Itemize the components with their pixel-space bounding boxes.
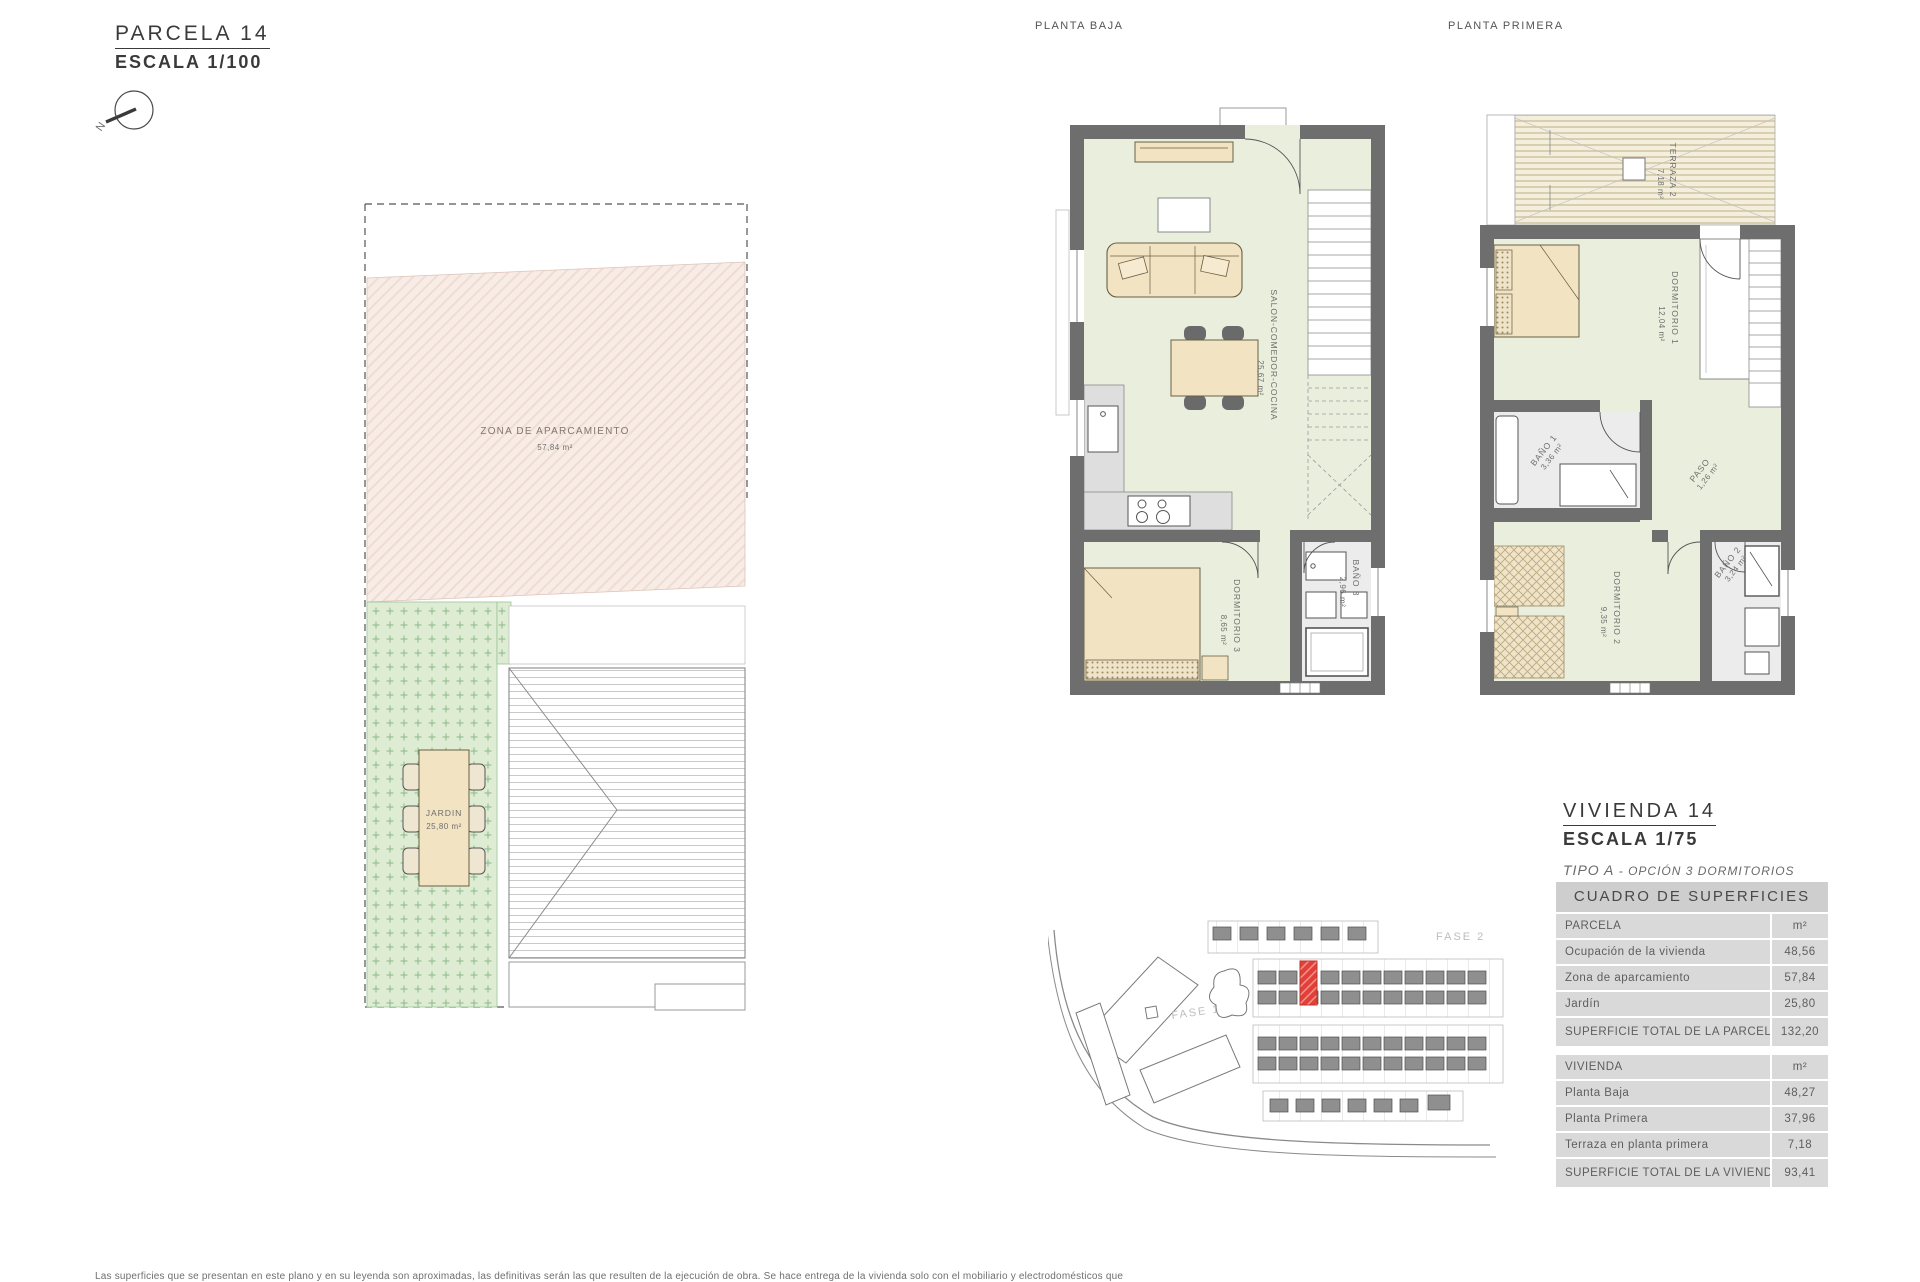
row-value: 25,80 bbox=[1772, 992, 1828, 1016]
row-label: Jardín bbox=[1556, 992, 1770, 1016]
toilet bbox=[1306, 592, 1336, 618]
lot-strips bbox=[1208, 921, 1503, 1121]
row-label: VIVIENDA bbox=[1556, 1055, 1770, 1079]
vivienda-title-block: VIVIENDA 14 ESCALA 1/75 TIPO A - OPCIÓN … bbox=[1563, 800, 1795, 878]
vivienda-opcion: - OPCIÓN 3 DORMITORIOS bbox=[1619, 864, 1795, 878]
dorm1-area: 12,04 m² bbox=[1657, 306, 1666, 342]
toilet2 bbox=[1745, 608, 1779, 646]
first-floor-plan: TERRAZA 2 7,18 m² bbox=[1460, 100, 1810, 710]
parking-zone: ZONA DE APARCAMIENTO 57,84 m² bbox=[367, 262, 745, 602]
salon-area: 25,67 m² bbox=[1256, 360, 1265, 396]
row-label: Planta Primera bbox=[1556, 1107, 1770, 1131]
sink bbox=[1088, 406, 1118, 452]
row-value: 48,27 bbox=[1772, 1081, 1828, 1105]
bano3-label: BAÑO 3 bbox=[1351, 560, 1361, 597]
footer-disclaimer: Las superficies que se presentan en este… bbox=[95, 1271, 1123, 1282]
highlighted-unit-14 bbox=[1300, 961, 1317, 1005]
row-label: Planta Baja bbox=[1556, 1081, 1770, 1105]
row-value: 7,18 bbox=[1772, 1133, 1828, 1157]
bathroom1 bbox=[1494, 412, 1640, 508]
table-row: Zona de aparcamiento 57,84 bbox=[1556, 966, 1828, 990]
north-label: N bbox=[94, 120, 108, 133]
table-row: Jardín 25,80 bbox=[1556, 992, 1828, 1016]
vivienda-tipo-line: TIPO A - OPCIÓN 3 DORMITORIOS bbox=[1563, 862, 1795, 878]
site-plan: FASE 1 FASE 2 bbox=[1048, 915, 1508, 1160]
ground-floor-plan: SALON-COMEDOR-COCINA 25,67 m² DORMITORIO… bbox=[1050, 100, 1400, 710]
row-value: 48,56 bbox=[1772, 940, 1828, 964]
sink-unit bbox=[1560, 464, 1636, 506]
row-label: Zona de aparcamiento bbox=[1556, 966, 1770, 990]
cooktop bbox=[1128, 496, 1190, 526]
sofa bbox=[1107, 243, 1242, 297]
parcela-title-block: PARCELA 14 ESCALA 1/100 bbox=[115, 22, 270, 73]
garden-label: JARDIN bbox=[426, 808, 462, 818]
table-row: VIVIENDA m² bbox=[1556, 1055, 1828, 1079]
roof-plan bbox=[509, 606, 745, 1010]
row-label: SUPERFICIE TOTAL DE LA VIVIENDA bbox=[1556, 1159, 1770, 1187]
vivienda-title: VIVIENDA 14 bbox=[1563, 800, 1716, 826]
row-value: m² bbox=[1772, 1055, 1828, 1079]
table-row-total: SUPERFICIE TOTAL DE LA PARCELA 132,20 bbox=[1556, 1018, 1828, 1046]
table-row: Terraza en planta primera 7,18 bbox=[1556, 1133, 1828, 1157]
shower bbox=[1306, 628, 1368, 676]
row-label: PARCELA bbox=[1556, 914, 1770, 938]
parcel-plan: ZONA DE APARCAMIENTO 57,84 m² JARDIN 25,… bbox=[355, 198, 755, 1013]
table-row: Ocupación de la vivienda 48,56 bbox=[1556, 940, 1828, 964]
parking-zone-label: ZONA DE APARCAMIENTO bbox=[480, 426, 629, 437]
wardrobe2 bbox=[1494, 546, 1564, 606]
porch-step bbox=[1220, 108, 1286, 126]
row-value: m² bbox=[1772, 914, 1828, 938]
table-section-gap bbox=[1556, 1046, 1828, 1053]
exterior-sill bbox=[1056, 210, 1069, 415]
table-row: PARCELA m² bbox=[1556, 914, 1828, 938]
house-units bbox=[1213, 927, 1486, 1112]
dorm1-label: DORMITORIO 1 bbox=[1670, 271, 1680, 345]
row-value: 37,96 bbox=[1772, 1107, 1828, 1131]
terrace: TERRAZA 2 7,18 m² bbox=[1487, 115, 1775, 225]
coffee-table bbox=[1158, 198, 1210, 232]
row-value: 132,20 bbox=[1772, 1018, 1828, 1046]
garden-area: 25,80 m² bbox=[426, 822, 462, 831]
fase2-label: FASE 2 bbox=[1436, 931, 1485, 943]
stairwell bbox=[1749, 239, 1781, 407]
row-label: SUPERFICIE TOTAL DE LA PARCELA bbox=[1556, 1018, 1770, 1046]
parcela-scale: ESCALA 1/100 bbox=[115, 52, 270, 73]
dorm3-label: DORMITORIO 3 bbox=[1232, 579, 1242, 653]
vivienda-tipo: TIPO A bbox=[1563, 862, 1614, 878]
dorm2-area: 9,35 m² bbox=[1599, 607, 1608, 638]
dorm2-label: DORMITORIO 2 bbox=[1612, 571, 1622, 645]
garden-table bbox=[403, 750, 485, 886]
parcela-title: PARCELA 14 bbox=[115, 22, 270, 49]
vivienda-scale: ESCALA 1/75 bbox=[1563, 829, 1795, 850]
bathtub bbox=[1496, 416, 1518, 504]
parking-zone-area: 57,84 m² bbox=[537, 443, 573, 452]
ground-floor-title: PLANTA BAJA bbox=[1035, 20, 1123, 32]
row-label: Terraza en planta primera bbox=[1556, 1133, 1770, 1157]
row-value: 57,84 bbox=[1772, 966, 1828, 990]
terraza-area: 7,18 m² bbox=[1656, 169, 1665, 200]
surface-table: CUADRO DE SUPERFICIES PARCELA m² Ocupaci… bbox=[1556, 882, 1828, 1187]
table-row-total: SUPERFICIE TOTAL DE LA VIVIENDA 93,41 bbox=[1556, 1159, 1828, 1187]
row-label: Ocupación de la vivienda bbox=[1556, 940, 1770, 964]
garden-zone: JARDIN 25,80 m² bbox=[367, 602, 511, 1007]
first-floor-title: PLANTA PRIMERA bbox=[1448, 20, 1564, 32]
bano3-area: 2,96 m² bbox=[1338, 577, 1347, 608]
sideboard bbox=[1135, 142, 1233, 162]
table-row: Planta Primera 37,96 bbox=[1556, 1107, 1828, 1131]
fase1-buildings bbox=[1076, 957, 1249, 1105]
row-value: 93,41 bbox=[1772, 1159, 1828, 1187]
table-row: Planta Baja 48,27 bbox=[1556, 1081, 1828, 1105]
nightstand bbox=[1202, 656, 1228, 680]
north-arrow: N bbox=[90, 80, 170, 150]
surface-table-title: CUADRO DE SUPERFICIES bbox=[1556, 882, 1828, 912]
salon-label: SALON-COMEDOR-COCINA bbox=[1269, 289, 1279, 420]
dorm3-area: 8,65 m² bbox=[1219, 615, 1228, 646]
terraza-label: TERRAZA 2 bbox=[1668, 143, 1678, 198]
